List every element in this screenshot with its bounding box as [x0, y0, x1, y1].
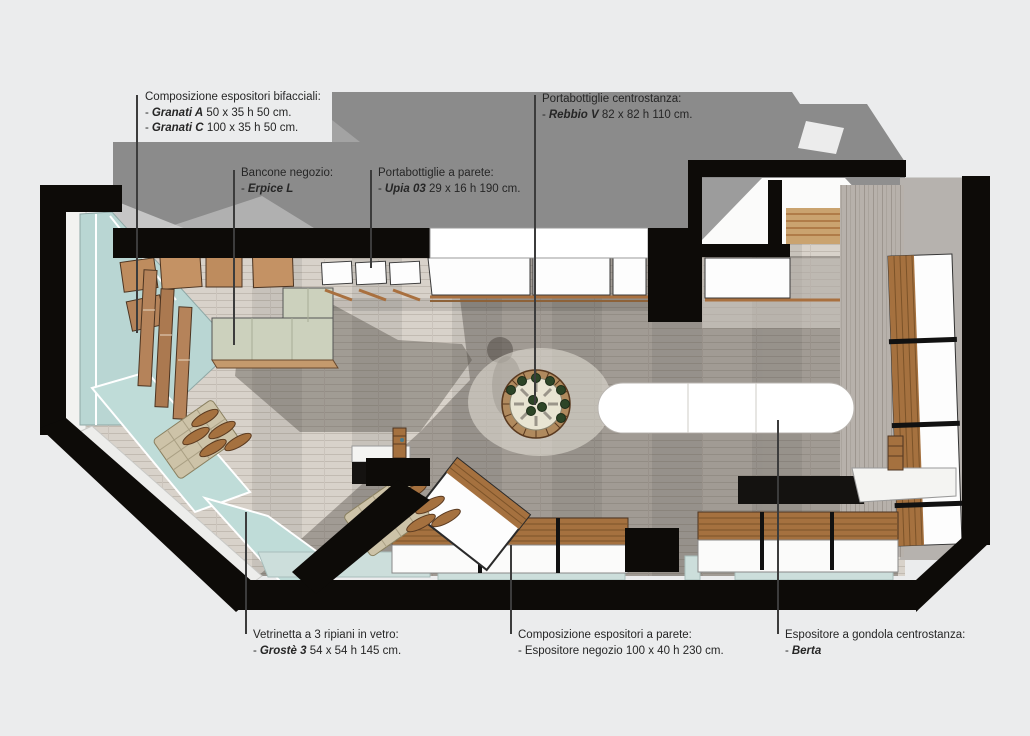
label-vetrinetta: Vetrinetta a 3 ripiani in vetro: -Grostè…: [253, 628, 493, 659]
label-gondola: Espositore a gondola centrostanza: -Bert…: [785, 628, 1025, 659]
label-title: Portabottiglie a parete:: [378, 166, 618, 182]
label-title: Composizione espositori a parete:: [518, 628, 758, 644]
leader-line-gondola: [777, 420, 779, 634]
label-title: Vetrinetta a 3 ripiani in vetro:: [253, 628, 493, 644]
label-portabottiglie-parete: Portabottiglie a parete: -Upia 03 29 x 1…: [378, 166, 618, 197]
leader-line-vetrinetta: [245, 512, 247, 634]
label-bifacciali: Composizione espositori bifacciali: -Gra…: [145, 90, 385, 137]
floor-plan: Composizione espositori bifacciali: -Gra…: [0, 0, 1030, 736]
label-title: Portabottiglie centrostanza:: [542, 92, 782, 108]
leader-line-espositori-parete: [510, 545, 512, 634]
label-portabottiglie-centrostanza: Portabottiglie centrostanza: -Rebbio V 8…: [542, 92, 782, 123]
label-title: Espositore a gondola centrostanza:: [785, 628, 1025, 644]
leader-line-bancone: [233, 170, 235, 345]
leader-line-bifacciali: [136, 95, 138, 333]
right-wall-units: [886, 254, 964, 546]
label-title: Composizione espositori bifacciali:: [145, 90, 385, 106]
rebbio-bottle-holder: [502, 370, 570, 438]
label-espositori-parete: Composizione espositori a parete: -Espos…: [518, 628, 758, 659]
leader-line-rebbio: [534, 95, 536, 405]
berta-gondola: [598, 383, 854, 433]
